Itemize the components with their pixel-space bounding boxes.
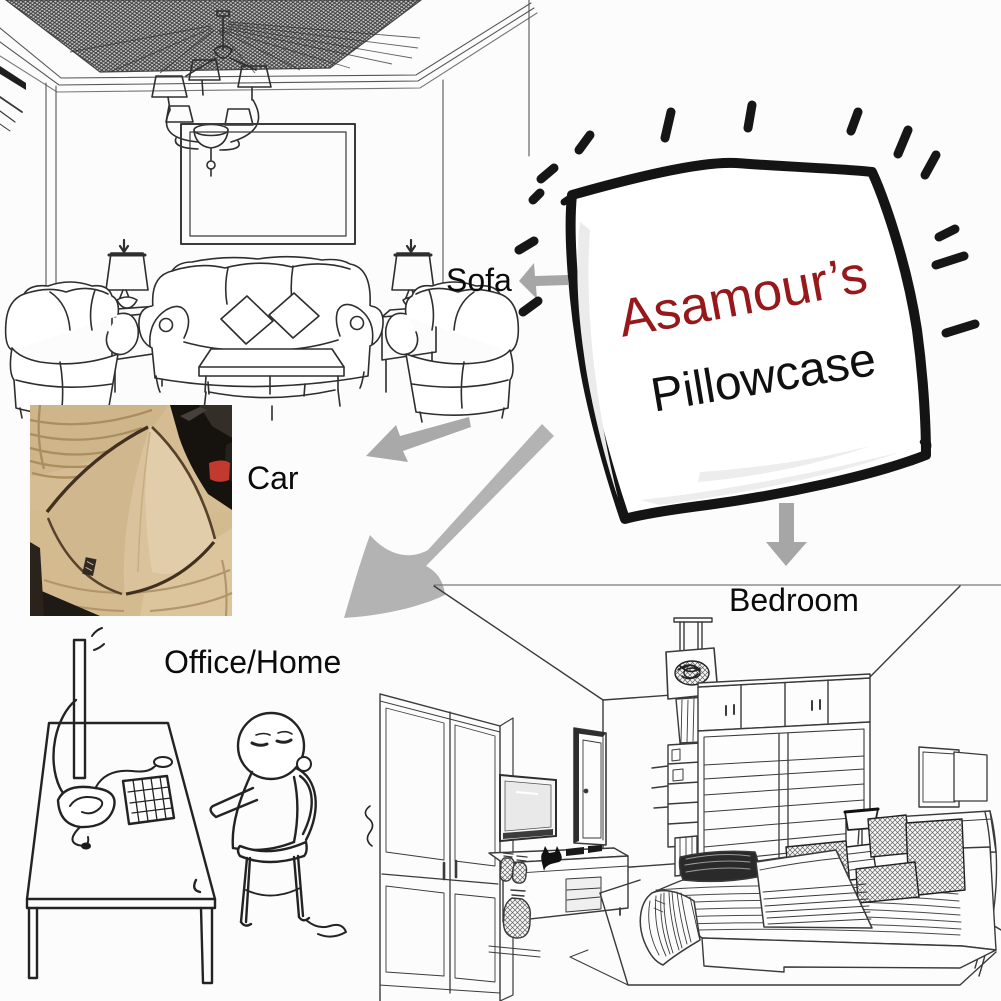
svg-text:Sofa: Sofa	[446, 262, 512, 298]
svg-text:Car: Car	[247, 460, 299, 496]
svg-text:Office/Home: Office/Home	[164, 644, 341, 680]
svg-text:Bedroom: Bedroom	[729, 582, 859, 618]
